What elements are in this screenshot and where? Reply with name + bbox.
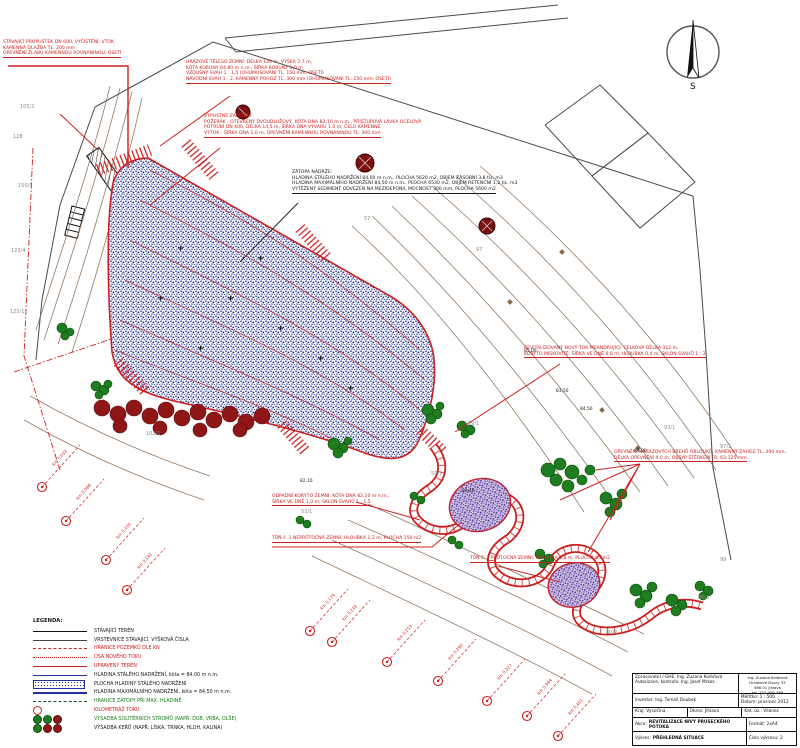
svg-text:57: 57 [364,216,370,222]
tb-katuz: Kat. úz.: Vílanec [742,708,796,717]
svg-text:59/2: 59/2 [431,471,442,477]
svg-text:105/2: 105/2 [20,104,34,110]
title-block: Zpracovatel / GHE: Ing. Zuzana Kolářová … [632,673,797,746]
tb-datum: Datum: prosinec 2012 [741,700,794,705]
north-label: S [690,82,696,92]
legend-item: UPRAVENÝ TERÉN [33,662,283,671]
note-culvert: STÁVAJÍCÍ PROPUSTEK DN 600, VYČIŠTĚNÍ, V… [3,40,121,58]
station-label: km 0,105 [115,521,132,539]
note-pool1: TŮŇ č. 1 NEPRŮTOČNÁ ZEMNÍ, HLOUBKA 1,2 m… [272,536,421,543]
station-swatch [33,706,42,715]
station-label: km 0,401 [567,697,584,715]
svg-text:83,50: 83,50 [556,388,569,394]
tb-format: Formát: 2xA4 [747,718,796,731]
note-new-channel: REVITALIZOVANÝ NOVÝ TOK MEANDRUJÍCÍ, CEL… [524,346,706,358]
svg-text:97: 97 [476,247,482,253]
line-swatch [33,692,87,694]
line-swatch [33,675,87,676]
line-swatch [33,640,87,641]
station-label: km 0,290 [447,642,464,660]
tree-swatch [33,715,42,724]
tb-akce: REVITALIZACE NIVY PRUSECKÉHO POTOKA [649,720,744,730]
note-bypass: ODPADNÍ KORYTO ZEMNÍ, KÓTA DNA 82,10 m n… [272,494,390,506]
svg-text:150/1: 150/1 [18,183,32,189]
shrub-swatch [33,724,42,733]
tb-vykres: PŘEHLEDNÁ SITUACE [653,736,704,741]
note-bank-protection: OPEVNĚNÍ NÁRAZOVÝCH BŘEHŮ OBLOUKŮ, KAMEN… [614,450,786,462]
legend-item: HLADINA MAXIMÁLNÍHO NADRŽENÍ, kóta = 84,… [33,689,283,698]
station-label: km 0,068 [75,482,92,500]
north-arrow: S [667,20,719,92]
station-label: km 0,142 [136,551,153,569]
note-outlet: VÝPUSTNÉ ZAŘÍZENÍ: POŽERÁK - OTEVŘENÝ DV… [204,114,421,138]
legend-item: HRANICE ZÁTOPY PŘI MAX. HLADINĚ [33,697,283,706]
legend-item: VRSTEVNICE STÁVAJÍCÍ, VÝŠKOVÁ ČÍSLA [33,636,283,645]
note-pool2: TŮŇ č. 2 PRŮTOČNÁ ZEMNÍ, HLOUBKA 0,8 m, … [470,556,610,563]
note-dam: HRÁZOVÉ TĚLESO ZEMNÍ: DÉLKA 120 m, VÝŠKA… [186,60,391,84]
legend-item: STÁVAJÍCÍ TERÉN [33,627,283,636]
note-flood: ZÁTOPA NÁDRŽE: HLADINA STÁLÉHO NADRŽENÍ … [292,170,517,194]
svg-text:125/1: 125/1 [10,309,24,315]
svg-text:69/1: 69/1 [468,421,479,427]
line-swatch [33,666,87,667]
tb-investor: Investor: Ing. Tomáš Doubek [633,694,739,707]
station-label: km 0,253 [396,623,413,641]
line-swatch [33,701,87,702]
legend-item: KILOMETRÁŽ TOKU [33,706,283,715]
legend-item: HRANICE POZEMKŮ DLE KN [33,645,283,654]
legend-item: HLADINA STÁLÉHO NADRŽENÍ, kóta = 84,00 m… [33,671,283,680]
site-plan-canvas: km 0,032 km 0,068 km 0,105 km 0,142 km 0… [0,0,800,748]
svg-text:82,10: 82,10 [300,478,313,484]
line-swatch [33,657,87,658]
tb-cislo: Číslo výkresu: 2 [747,732,796,745]
svg-text:123/4: 123/4 [11,248,25,254]
legend-item: VÝSADBA SOLITÉRNÍCH STROMŮ (NAPŘ. DUB, V… [33,715,283,724]
svg-text:82,40: 82,40 [462,488,475,494]
station-label: km 0,179 [319,592,336,610]
station-label: km 0,327 [496,662,513,680]
svg-text:93/1: 93/1 [664,425,675,431]
line-swatch [33,648,87,649]
legend-item: PLOCHA HLADINY STÁLÉHO NADRŽENÍ [33,680,283,689]
svg-text:102/1: 102/1 [146,431,160,437]
station-label: km 0,216 [341,603,358,621]
legend-item: VÝSADBA KEŘŮ (NAPŘ. LÍSKA, TRNKA, HLOH, … [33,724,283,733]
svg-text:85/3: 85/3 [698,595,709,601]
tb-autorizace: Autorizace, kontrola: Ing. Josef Mrkos [635,680,736,685]
svg-text:128: 128 [13,134,23,140]
station-label: km 0,364 [536,677,553,695]
line-swatch [33,631,87,632]
legend-title: LEGENDA: [33,618,283,624]
tb-kraj: Kraj: Vysočina [633,708,688,717]
legend: LEGENDA: STÁVAJÍCÍ TERÉN VRSTEVNICE STÁV… [33,618,283,733]
tb-okres: Okres: Jihlava [688,708,743,717]
svg-text:99: 99 [720,557,726,563]
legend-item: OSA NOVÉHO TOKU [33,653,283,662]
svg-text:53/1: 53/1 [301,509,312,515]
svg-text:80/2: 80/2 [606,630,617,636]
svg-text:84,50: 84,50 [580,406,593,412]
water-area-swatch [33,680,85,689]
